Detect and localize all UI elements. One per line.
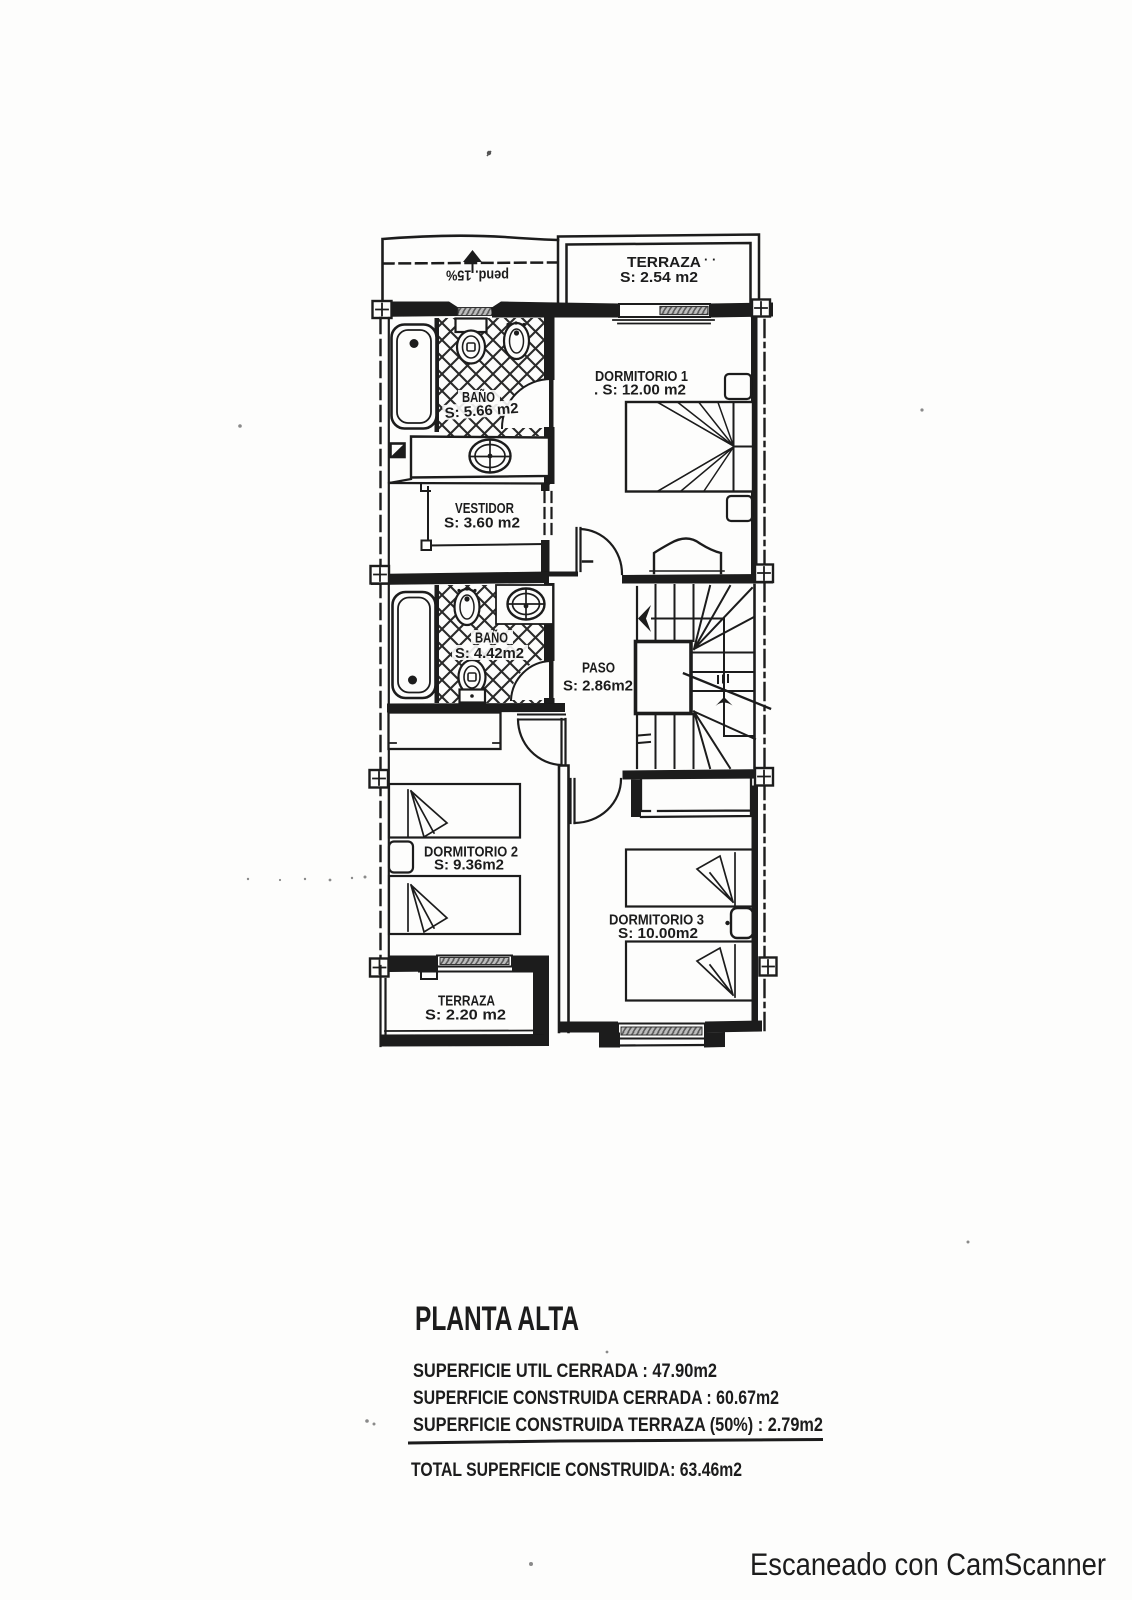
svg-text:TERRAZA: TERRAZA [627,255,702,271]
svg-text:SUPERFICIE CONSTRUIDA CERRADA: SUPERFICIE CONSTRUIDA CERRADA : 60.67m2 [413,1387,779,1409]
svg-text:. S: 12.00 m2: . S: 12.00 m2 [594,383,686,399]
svg-text:pend. 15%: pend. 15% [446,267,509,283]
svg-text:BAÑO: BAÑO [475,629,508,647]
svg-text:S: 2.54 m2: S: 2.54 m2 [620,270,698,286]
svg-text:PLANTA ALTA: PLANTA ALTA [415,1300,579,1338]
svg-text:· ·: · · [704,252,716,267]
svg-text:S: 3.60 m2: S: 3.60 m2 [444,516,520,532]
svg-text:S: 2.20 m2: S: 2.20 m2 [425,1008,506,1024]
svg-text:SUPERFICIE UTIL CERRADA : 47.9: SUPERFICIE UTIL CERRADA : 47.90m2 [413,1360,717,1382]
svg-text:S: 10.00m2: S: 10.00m2 [618,926,698,942]
svg-text:TOTAL SUPERFICIE CONSTRUIDA: 6: TOTAL SUPERFICIE CONSTRUIDA: 63.46m2 [411,1459,742,1481]
svg-text:S: 4.42m2: S: 4.42m2 [455,646,524,662]
svg-text:S: 9.36m2: S: 9.36m2 [434,858,504,874]
svg-text:Escaneado con CamScanner: Escaneado con CamScanner [750,1546,1106,1582]
svg-text:PASO: PASO [582,661,615,677]
svg-text:S: 2.86m2: S: 2.86m2 [563,679,633,695]
svg-text:SUPERFICIE CONSTRUIDA TERRAZA: SUPERFICIE CONSTRUIDA TERRAZA (50%) : 2.… [413,1414,823,1436]
